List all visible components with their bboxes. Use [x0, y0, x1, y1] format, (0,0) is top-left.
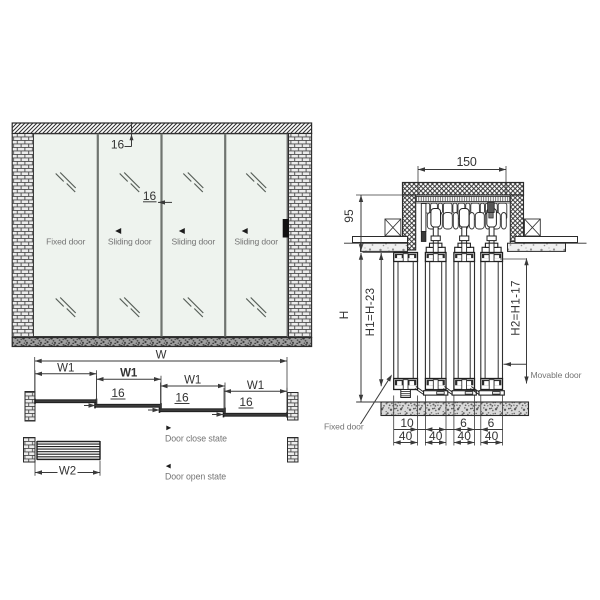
- svg-text:W: W: [156, 349, 167, 361]
- svg-text:H2=H1-17: H2=H1-17: [510, 280, 522, 336]
- svg-text:Door close state: Door close state: [165, 434, 227, 444]
- svg-text:40: 40: [399, 429, 413, 443]
- svg-text:6: 6: [488, 416, 495, 430]
- svg-text:Fixed door: Fixed door: [46, 237, 85, 247]
- svg-text:W1: W1: [57, 362, 74, 374]
- svg-text:W1: W1: [120, 368, 138, 380]
- svg-text:40: 40: [458, 429, 472, 443]
- svg-text:40: 40: [485, 429, 499, 443]
- svg-text:H: H: [337, 311, 351, 320]
- svg-text:W1: W1: [247, 380, 264, 392]
- svg-text:H1=H-23: H1=H-23: [365, 288, 377, 337]
- svg-text:95: 95: [342, 209, 356, 223]
- svg-text:16: 16: [143, 189, 157, 203]
- svg-text:16: 16: [111, 386, 125, 400]
- svg-text:16: 16: [239, 395, 253, 409]
- svg-text:Movable door: Movable door: [531, 370, 582, 380]
- svg-text:W2: W2: [59, 465, 76, 477]
- svg-text:40: 40: [429, 429, 443, 443]
- svg-text:Door open state: Door open state: [165, 472, 226, 482]
- svg-text:Sliding door: Sliding door: [172, 237, 216, 247]
- svg-text:150: 150: [457, 155, 477, 169]
- svg-text:6: 6: [460, 416, 467, 430]
- svg-text:Sliding door: Sliding door: [234, 237, 278, 247]
- svg-text:16: 16: [111, 138, 125, 152]
- svg-text:16: 16: [175, 390, 189, 404]
- svg-text:W1: W1: [184, 375, 201, 387]
- svg-text:Sliding door: Sliding door: [108, 237, 152, 247]
- svg-text:Fixed door: Fixed door: [324, 422, 364, 432]
- svg-text:10: 10: [400, 416, 414, 430]
